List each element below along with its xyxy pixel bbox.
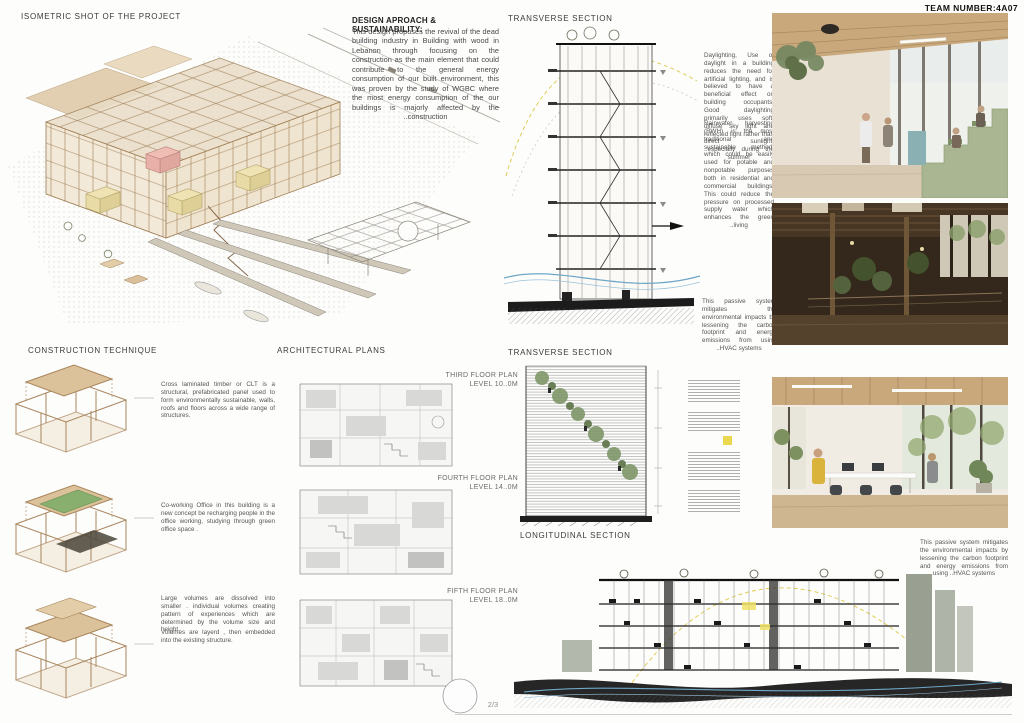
plan-drawing-third xyxy=(288,378,470,474)
plan-drawing-fourth xyxy=(288,482,470,582)
footer-rule xyxy=(455,714,1012,715)
render-photo-dark-atrium xyxy=(772,203,1008,345)
render-photo-atrium-seating xyxy=(772,13,1008,198)
page-number: 2/3 xyxy=(478,700,508,709)
note-volumes-2: Volumes are layerd , then embedded into … xyxy=(161,629,275,645)
transverse-bottom-title: TRANSVERSE SECTION xyxy=(508,348,613,357)
plan-drawing-fifth xyxy=(288,594,484,718)
micro-annotation xyxy=(688,412,740,432)
construction-section-title: CONSTRUCTION TECHNIQUE xyxy=(28,346,157,355)
construction-drawing xyxy=(6,358,160,720)
note-passive-system: This passive system mitigates the enviro… xyxy=(702,298,776,353)
render-photo-office xyxy=(772,377,1008,528)
plans-section-title: ARCHITECTURAL PLANS xyxy=(277,346,386,355)
transverse-bottom-drawing xyxy=(508,358,684,532)
note-coworking: Co-working Office in this building is a … xyxy=(161,502,275,533)
longitudinal-section-title: LONGITUDINAL SECTION xyxy=(520,531,631,540)
presentation-board: TEAM NUMBER:4A07 ISOMETRIC SHOT OF THE P… xyxy=(0,0,1024,723)
team-number-label: TEAM NUMBER:4A07 xyxy=(925,3,1018,13)
longitudinal-drawing xyxy=(514,544,1012,712)
micro-annotation xyxy=(688,452,740,480)
note-clt: Cross laminated timber or CLT is a struc… xyxy=(161,381,275,420)
transverse-top-drawing xyxy=(502,26,702,342)
legend-yellow-swatch xyxy=(723,436,732,445)
isometric-section-title: ISOMETRIC SHOT OF THE PROJECT xyxy=(21,12,181,21)
micro-annotation xyxy=(688,380,740,404)
note-rainwater: Rainwater harvesting (RWH) is the most t… xyxy=(704,120,774,230)
micro-annotation xyxy=(688,490,740,514)
transverse-top-title: TRANSVERSE SECTION xyxy=(508,14,613,23)
design-approach-body: This design proposes the revival of the … xyxy=(352,27,499,122)
